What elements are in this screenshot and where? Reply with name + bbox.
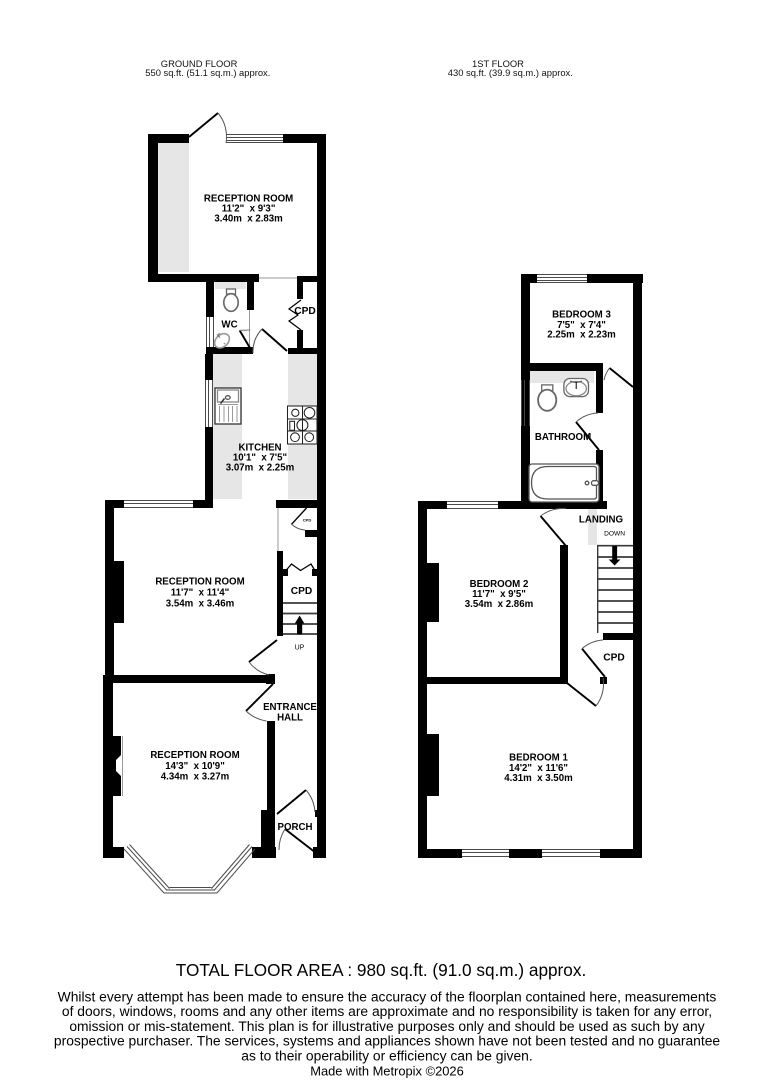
svg-text:BATHROOM: BATHROOM — [535, 432, 591, 443]
svg-text:as to their operability or eff: as to their operability or efficiency ca… — [241, 1048, 532, 1064]
svg-text:11'7" x 11'4": 11'7" x 11'4" — [171, 587, 230, 598]
svg-text:RECEPTION ROOM: RECEPTION ROOM — [155, 576, 244, 587]
svg-text:4.31m x 3.50m: 4.31m x 3.50m — [504, 773, 573, 784]
svg-text:prospective purchaser. The ser: prospective purchaser. The services, sys… — [54, 1033, 720, 1049]
svg-text:4.34m x 3.27m: 4.34m x 3.27m — [161, 771, 230, 782]
svg-text:LANDING: LANDING — [579, 514, 623, 525]
svg-text:RECEPTION ROOM: RECEPTION ROOM — [150, 750, 239, 761]
svg-text:430 sq.ft. (39.9 sq.m.) approx: 430 sq.ft. (39.9 sq.m.) approx. — [448, 67, 573, 78]
svg-text:CPD: CPD — [603, 653, 625, 664]
svg-text:2.25m x 2.23m: 2.25m x 2.23m — [547, 329, 616, 340]
svg-text:14'3" x 10'9": 14'3" x 10'9" — [165, 761, 225, 772]
svg-text:PORCH: PORCH — [278, 822, 313, 833]
svg-text:of doors, windows, rooms and a: of doors, windows, rooms and any other i… — [62, 1003, 712, 1019]
svg-text:3.07m x 2.25m: 3.07m x 2.25m — [226, 462, 295, 473]
svg-text:TOTAL FLOOR AREA : 980 sq.ft.: TOTAL FLOOR AREA : 980 sq.ft. (91.0 sq.m… — [176, 960, 586, 980]
svg-text:Made with Metropix ©2026: Made with Metropix ©2026 — [310, 1064, 464, 1079]
svg-text:UP: UP — [295, 645, 305, 652]
svg-text:WC: WC — [221, 319, 237, 330]
svg-text:BEDROOM 3: BEDROOM 3 — [552, 309, 611, 320]
svg-text:BEDROOM 1: BEDROOM 1 — [509, 753, 568, 764]
svg-text:3.40m x 2.83m: 3.40m x 2.83m — [214, 213, 283, 224]
svg-text:ENTRANCE: ENTRANCE — [263, 702, 317, 713]
svg-text:CPD: CPD — [291, 586, 313, 597]
svg-text:Whilst every attempt has been: Whilst every attempt has been made to en… — [58, 988, 717, 1004]
svg-text:omission or mis-statement. Thi: omission or mis-statement. This plan is … — [69, 1018, 704, 1034]
svg-text:3.54m x 3.46m: 3.54m x 3.46m — [166, 598, 235, 609]
svg-text:3.54m x 2.86m: 3.54m x 2.86m — [465, 599, 534, 610]
svg-text:CPD: CPD — [303, 518, 312, 523]
svg-text:550 sq.ft. (51.1 sq.m.) approx: 550 sq.ft. (51.1 sq.m.) approx. — [145, 67, 270, 78]
svg-text:DOWN: DOWN — [604, 530, 625, 537]
svg-text:HALL: HALL — [277, 713, 303, 724]
svg-text:CPD: CPD — [294, 306, 316, 317]
